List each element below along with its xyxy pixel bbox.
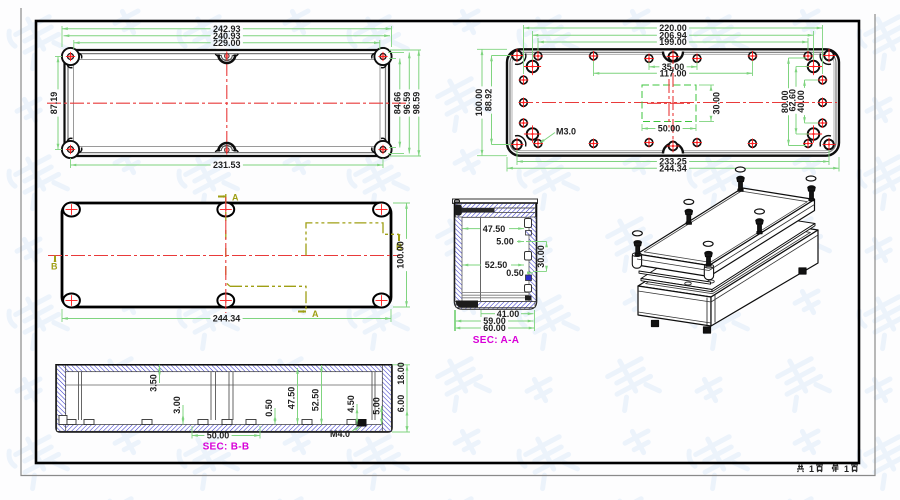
svg-text:52.50: 52.50 — [311, 389, 321, 412]
svg-text:30.00: 30.00 — [536, 245, 546, 268]
svg-text:3.50: 3.50 — [149, 374, 159, 392]
svg-text:231.53: 231.53 — [213, 160, 241, 170]
svg-text:SEC: B-B: SEC: B-B — [203, 442, 250, 453]
svg-text:84.66: 84.66 — [393, 92, 403, 115]
svg-text:5.00: 5.00 — [496, 237, 514, 247]
svg-text:60.00: 60.00 — [483, 323, 506, 333]
svg-text:1: 1 — [809, 464, 814, 474]
svg-text:87.19: 87.19 — [49, 92, 59, 115]
svg-text:50.00: 50.00 — [658, 124, 681, 134]
svg-text:50.00: 50.00 — [207, 431, 230, 441]
svg-text:30.00: 30.00 — [712, 92, 722, 115]
svg-text:88.92: 88.92 — [484, 89, 494, 112]
svg-text:A: A — [232, 193, 239, 203]
svg-text:0.50: 0.50 — [264, 399, 274, 417]
svg-text:1: 1 — [844, 464, 849, 474]
svg-text:4.50: 4.50 — [346, 395, 356, 413]
svg-text:0.50: 0.50 — [506, 268, 524, 278]
svg-text:100.00: 100.00 — [474, 89, 484, 117]
svg-text:96.59: 96.59 — [402, 92, 412, 115]
svg-text:6.00: 6.00 — [396, 395, 406, 413]
svg-text:B: B — [51, 262, 58, 272]
svg-text:5.00: 5.00 — [372, 397, 382, 415]
svg-text:100.00: 100.00 — [396, 241, 406, 269]
svg-text:M4.0: M4.0 — [330, 429, 350, 439]
svg-text:40.00: 40.00 — [796, 90, 806, 113]
svg-text:244.34: 244.34 — [213, 314, 241, 324]
svg-text:18.00: 18.00 — [396, 362, 406, 385]
svg-text:229.00: 229.00 — [213, 38, 241, 48]
svg-text:A: A — [312, 309, 319, 319]
svg-text:52.50: 52.50 — [485, 260, 508, 270]
svg-text:199.00: 199.00 — [659, 37, 687, 47]
svg-text:47.50: 47.50 — [287, 387, 297, 410]
svg-text:98.59: 98.59 — [412, 92, 422, 115]
svg-text:3.00: 3.00 — [172, 396, 182, 414]
svg-text:47.50: 47.50 — [483, 224, 506, 234]
svg-text:117.00: 117.00 — [659, 69, 686, 79]
svg-text:SEC: A-A: SEC: A-A — [473, 335, 519, 346]
svg-text:244.34: 244.34 — [659, 163, 687, 173]
svg-text:M3.0: M3.0 — [556, 127, 576, 137]
